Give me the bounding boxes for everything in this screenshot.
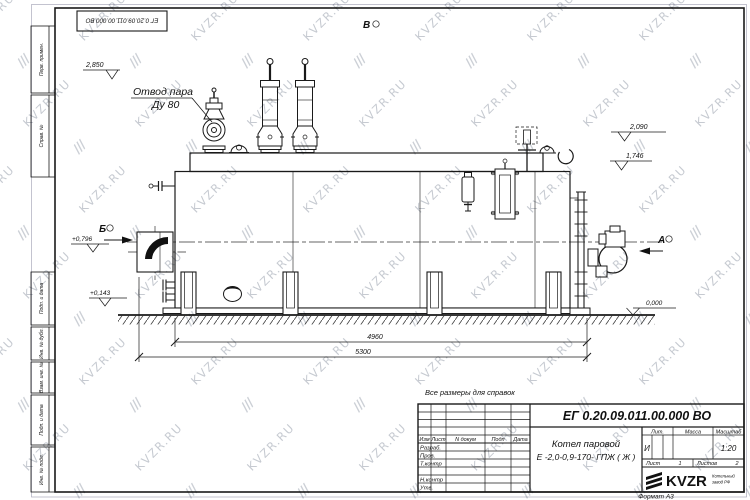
elevation-2090: 2,090 xyxy=(629,124,648,131)
sheets-value: 2 xyxy=(734,461,738,467)
view-mark-v xyxy=(373,21,379,27)
scale-value: 1:20 xyxy=(721,444,737,453)
sheets-label: Листов xyxy=(696,461,717,467)
view-label-b: Б xyxy=(99,224,106,235)
col-podp: Подп xyxy=(491,437,504,443)
product-name-line2: Е -2,0-0,9-170- ГПЖ ( Ж ) xyxy=(537,452,636,462)
support-leg xyxy=(283,272,298,315)
steam-drum xyxy=(190,153,543,172)
row-utv: Утв. xyxy=(419,486,433,492)
col-ndoc: N докум xyxy=(455,437,476,443)
row-nkontr: Н.контр xyxy=(420,478,444,484)
margin-labels: Перв. примен. Справ. № Подп. и дата Инв.… xyxy=(39,43,45,485)
elevation-1746: 1,746 xyxy=(626,153,644,160)
margin-invpodl-label: Инв. № подл. xyxy=(39,454,45,485)
elevation-0796: +0,796 xyxy=(72,236,92,243)
margin-podp2-label: Подп. и дата xyxy=(39,404,45,436)
steam-outlet-label-line1: Отвод пара xyxy=(133,86,193,98)
dim-4960-label: 4960 xyxy=(367,334,383,341)
drawing-texts: Отвод пара Ду 80 2,850 2,090 1,746 +0,79… xyxy=(72,20,665,397)
steam-outlet-valve xyxy=(203,88,225,153)
dim-5300-label: 5300 xyxy=(355,349,371,356)
kvzr-logo-icon xyxy=(646,472,662,490)
kvzr-logo-text: KVZR xyxy=(666,473,707,490)
burner-unit xyxy=(137,232,173,272)
margin-sprav-label: Справ. № xyxy=(39,124,45,147)
margin-vzam-label: Взам. инв. № xyxy=(39,361,45,393)
view-label-v: В xyxy=(363,20,370,31)
company-logo: KVZR Котельный завод РФ xyxy=(646,472,735,490)
elevation-0000: 0,000 xyxy=(646,300,663,307)
col-list: Лист xyxy=(430,437,446,443)
kvzr-logo-sub1: Котельный xyxy=(712,474,735,479)
format-label: Формат А3 xyxy=(638,494,674,500)
title-designation: ЕГ 0.20.09.011.00.000 ВО xyxy=(563,409,711,423)
elevation-0143: +0,143 xyxy=(90,290,110,297)
top-stamp: ЕГ 0.20.09.011.00.000 ВО xyxy=(77,11,167,31)
row-tkontr: Т.контр xyxy=(420,462,443,468)
ground-line xyxy=(118,315,655,325)
manhole xyxy=(224,287,242,302)
row-prov: Пров. xyxy=(420,454,435,460)
col-izm: Изм xyxy=(419,437,429,443)
safety-valve-1 xyxy=(256,59,284,153)
lifting-lug-left xyxy=(229,145,249,153)
margin-perv-label: Перв. примен. xyxy=(39,43,45,76)
support-leg xyxy=(427,272,442,315)
kvzr-logo-sub2: завод РФ xyxy=(711,480,731,485)
support-leg xyxy=(181,272,196,315)
view-label-a: А xyxy=(657,235,665,246)
lit-label: Лит. xyxy=(650,430,664,436)
rear-wall xyxy=(570,192,590,315)
scale-label: Масштаб xyxy=(716,430,743,436)
blower-fan xyxy=(588,226,627,277)
top-stamp-designation: ЕГ 0.20.09.011.00.000 ВО xyxy=(86,17,159,24)
sheet-value: 1 xyxy=(678,461,681,467)
base-rail xyxy=(163,308,587,314)
view-arrow-b xyxy=(104,225,133,244)
lifting-lug-right xyxy=(538,146,556,153)
view-arrow-a xyxy=(639,236,672,255)
safety-valve-2 xyxy=(291,59,319,153)
steam-outlet-label-line2: Ду 80 xyxy=(151,99,180,111)
drawing-sheet: Перв. примен. Справ. № Подп. и дата Инв.… xyxy=(0,0,750,500)
support-leg xyxy=(546,272,561,315)
reference-note: Все размеры для справок xyxy=(425,388,515,397)
hook-curl xyxy=(558,150,573,164)
lit-value: И xyxy=(644,444,650,453)
elevation-2850: 2,850 xyxy=(85,62,104,69)
product-name-line1: Котел паровой xyxy=(552,439,621,450)
massa-label: Масса xyxy=(685,430,701,436)
margin-invdubl-label: Инв. № дубл. xyxy=(39,328,45,359)
drawing-canvas: Перв. примен. Справ. № Подп. и дата Инв.… xyxy=(0,0,750,500)
sheet-label: Лист xyxy=(645,461,661,467)
row-razrab: Разраб. xyxy=(420,446,441,452)
margin-podp1-label: Подп. и дата xyxy=(39,283,45,315)
boiler-drawing xyxy=(71,21,676,362)
col-data: Дата xyxy=(512,437,528,443)
